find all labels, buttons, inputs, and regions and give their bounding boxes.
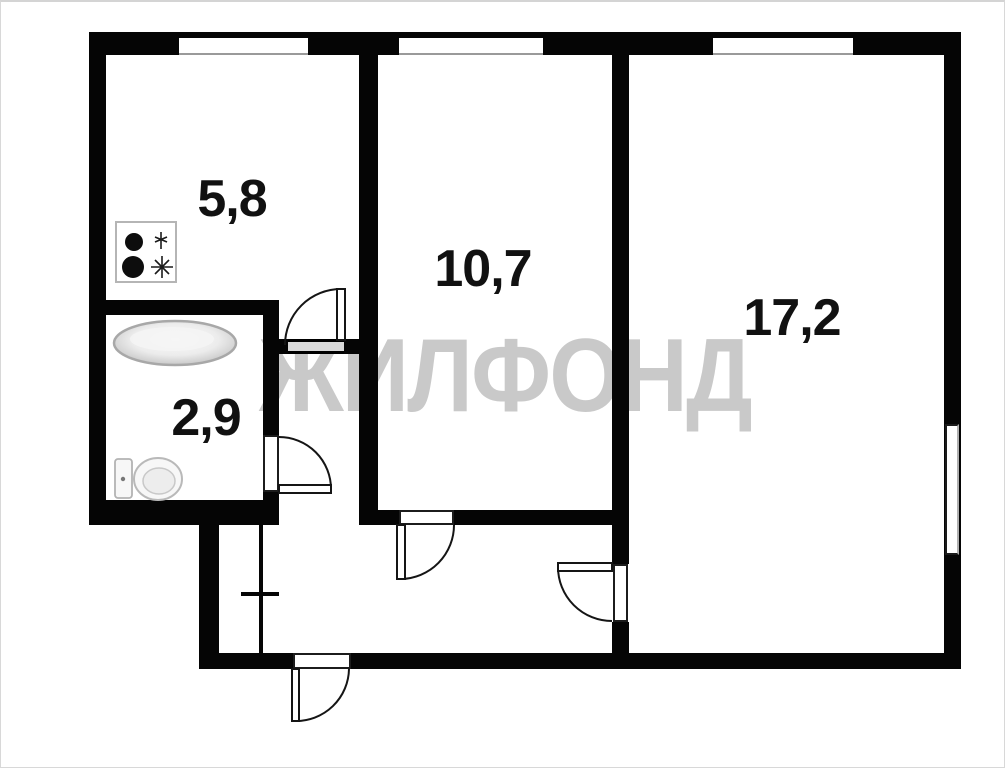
- bathroom-door-arc: [279, 437, 331, 489]
- entrance-door-arc: [295, 669, 349, 721]
- toilet-icon: [115, 458, 182, 500]
- entrance-door-leaf: [292, 669, 299, 721]
- bathtub-icon: [114, 321, 236, 365]
- room-large-area-label: 17,2: [722, 292, 862, 344]
- door-leaves: [279, 289, 612, 721]
- bathroom-door-leaf: [279, 485, 331, 493]
- room2-door-leaf: [558, 563, 612, 571]
- room2-door-arc: [558, 567, 612, 621]
- stove-icon: [116, 222, 176, 282]
- kitchen-door-leaf: [337, 289, 345, 340]
- bathroom-area-label: 2,9: [136, 392, 276, 444]
- floor-plan: ЖИЛФОНД: [0, 0, 1005, 768]
- kitchen-door-arc: [285, 289, 341, 345]
- room-middle-area-label: 10,7: [413, 243, 553, 295]
- kitchen-area-label: 5,8: [162, 173, 302, 225]
- room1-door-leaf: [397, 525, 405, 579]
- room1-door-arc: [401, 525, 454, 579]
- plan-overlay: [1, 2, 1005, 768]
- door-arcs: [279, 289, 612, 721]
